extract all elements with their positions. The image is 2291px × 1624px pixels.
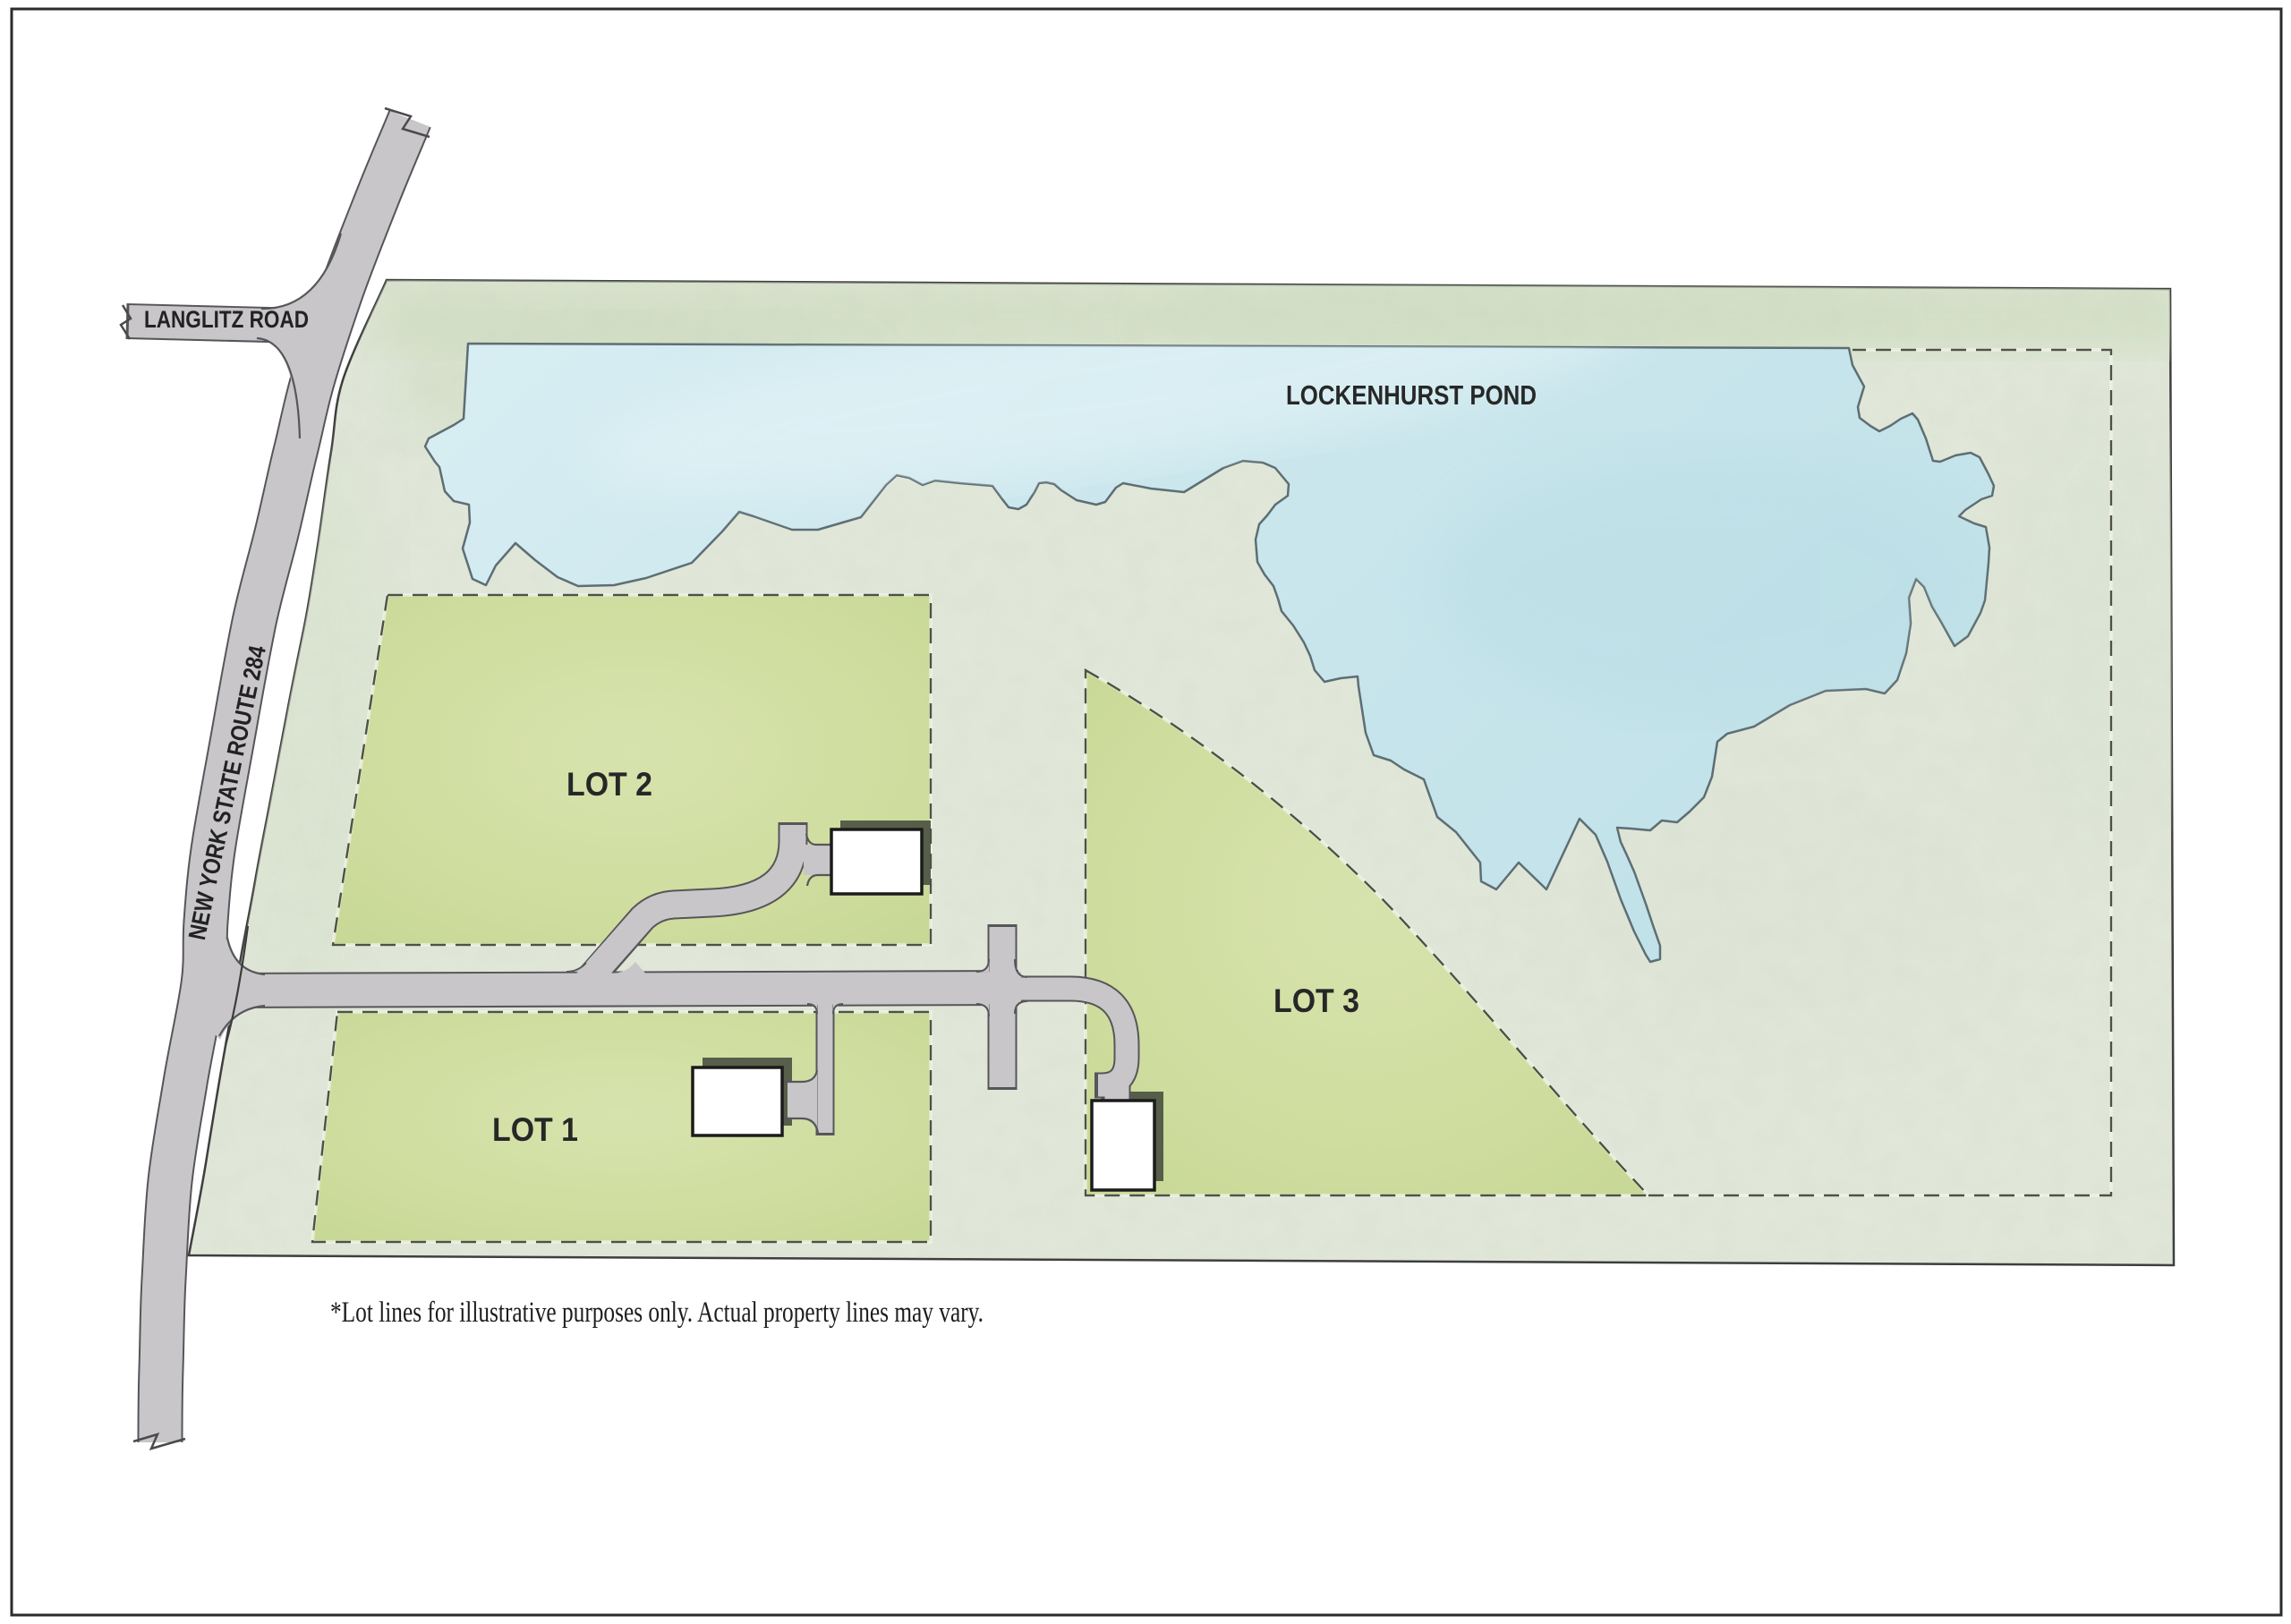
svg-text:LOT 1: LOT 1 [492,1111,578,1148]
svg-text:*Lot lines for illustrative pu: *Lot lines for illustrative purposes onl… [330,1297,984,1329]
svg-text:LANGLITZ ROAD: LANGLITZ ROAD [144,306,309,333]
svg-text:LOT 2: LOT 2 [566,766,652,803]
svg-text:LOCKENHURST POND: LOCKENHURST POND [1286,379,1537,411]
svg-text:LOT 3: LOT 3 [1273,982,1359,1019]
